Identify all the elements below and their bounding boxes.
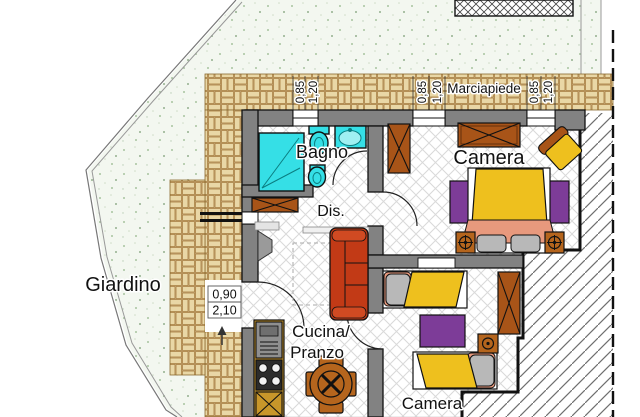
door-width-label: 0,90 [212,288,236,302]
room-label-kitchen-2: Pranzo [290,343,344,362]
neighbor-building-hatch [455,0,573,16]
rug [549,181,569,223]
nightstand [478,334,498,353]
brick-path [205,110,242,417]
brick-path-side [170,180,205,375]
floor-plan-canvas: 0,90 2,10 0,85 1,20 0,8 [0,0,640,417]
console-shelf [255,222,279,230]
sofa [330,228,368,320]
hallway-dresser [252,198,298,212]
kitchen-appliances [254,320,284,417]
window-height-label: 1,20 [432,81,444,103]
nightstand [545,232,564,253]
window-width-label: 0,85 [417,81,429,103]
double-bed [462,168,556,253]
sidewalk-label: Marciapiede [447,81,521,96]
door-height-label: 2,10 [212,304,236,318]
dresser [388,124,410,173]
wardrobe [458,123,520,147]
burner [259,377,267,385]
burner [272,377,280,385]
window-sill-bar [200,212,242,215]
window-sill-bar [200,219,242,222]
single-bed-2 [413,352,497,389]
wardrobe [498,272,520,334]
pillow [477,235,506,252]
burner [272,364,280,372]
window-height-label: 1,20 [543,81,555,103]
pillow [511,235,540,252]
nightstand [456,232,475,253]
burner [259,364,267,372]
room-label-bedroom1: Camera [453,147,525,169]
floor-plan-drawing: 0,90 2,10 0,85 1,20 0,8 [0,0,640,417]
window-width-label: 0,85 [295,81,307,103]
room-label-bathroom: Bagno [296,142,348,162]
rug [420,315,465,347]
window-height-label: 1,20 [308,81,320,103]
room-label-kitchen-1: Cucina/ [292,322,350,341]
room-label-bedroom2: Camera [402,394,463,413]
room-label-garden: Giardino [85,274,161,296]
room-label-hallway: Dis. [317,203,345,220]
single-bed-1 [383,271,467,308]
wall-niche [418,258,455,268]
window-width-label: 0,85 [529,81,541,103]
